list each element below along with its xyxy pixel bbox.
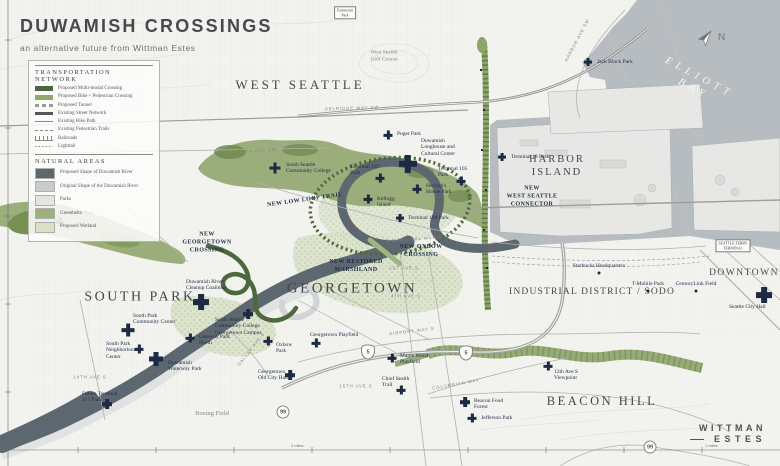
poi-marker-kellogg-island xyxy=(364,195,373,204)
legend-item-proposed-multi-modal-crossing: Proposed Multi-modal Crossing xyxy=(35,86,153,92)
legend-transportation-items: Proposed Multi-modal CrossingProposed Bi… xyxy=(35,86,153,150)
poi-label-12th-ave-s-viewpoint: 12th Ave S Viewpoint xyxy=(554,369,578,382)
poi-marker-gateway-park-north xyxy=(186,334,195,343)
scale-label-1-miles: 1 miles xyxy=(705,444,718,449)
cross-icon xyxy=(498,156,506,159)
poi-label-maple-wood-playfield: Maple Wood Playfield xyxy=(400,353,428,366)
legend-label-proposed-bike-pedestrian-crossing: Proposed Bike + Pedestrian Crossing xyxy=(58,94,132,100)
north-label: N xyxy=(718,32,725,43)
region-label-south-park: SOUTH PARK xyxy=(84,288,195,306)
cross-icon xyxy=(544,364,553,367)
new-infra-label-new-oxbow-crossing: NEW OXBOW CROSSING xyxy=(400,244,443,260)
legend-label-proposed-shape-of-duwamish-river: Proposed Shape of Duwamish River xyxy=(60,170,133,176)
poi-label-duwamish-waterway-park: Duwamish Waterway Park xyxy=(168,360,202,373)
poi-label-terminal-108-park: Terminal 108 Park xyxy=(408,215,449,221)
logo-line-1: WITTMAN xyxy=(692,423,766,433)
poi-marker-south-park-community-center xyxy=(122,324,135,337)
cross-icon xyxy=(584,61,592,64)
legend-swatch-proposed-multi-modal-crossing xyxy=(35,86,53,91)
poi-dot-starbucks-headquarters xyxy=(598,272,601,275)
poi-marker-south-park-neighborhood-center xyxy=(135,345,144,354)
cross-icon xyxy=(364,197,373,200)
poi-label-t-mobile-park: T-Mobile Park xyxy=(632,281,664,287)
poi-label-beacon-food-forest: Beacon Food Forest xyxy=(474,398,503,411)
poi-label-georgetown-playfield: Georgetown Playfield xyxy=(310,332,358,338)
cross-icon xyxy=(264,339,273,342)
road-label-4th-ave-s: 4TH AVE S xyxy=(391,293,421,298)
poi-marker-terminal-105-park xyxy=(457,177,466,186)
poi-label-puget-park: Puget Park xyxy=(397,131,421,137)
poi-marker-maple-wood-playfield xyxy=(388,354,397,363)
cross-icon xyxy=(270,166,281,170)
poi-marker-terminal-108-park xyxy=(396,214,404,222)
legend-swatch-proposed-tunnel xyxy=(35,104,53,107)
poi-marker-beacon-food-forest xyxy=(460,397,470,407)
scale-label-2-miles: 2 miles xyxy=(291,444,304,449)
poi-marker-jefferson-park xyxy=(468,414,477,423)
duwamish-crossings-map: DUWAMISH CROSSINGS an alternative future… xyxy=(0,0,780,466)
cross-icon xyxy=(399,161,417,167)
compass: N xyxy=(698,28,725,46)
poi-label-centurylink-field: CenturyLink Field xyxy=(676,281,717,287)
legend-label-lightrail: Lightrail xyxy=(58,144,76,150)
road-label-14th-ave-s: 14TH AVE S xyxy=(73,374,106,379)
poi-label-south-seattle-community-college: South Seattle Community College xyxy=(286,162,331,175)
poi-label-starbucks-headquarters: Starbucks Headquarters xyxy=(573,263,625,269)
poi-marker-south-seattle-community-college-georgetown-campus xyxy=(243,309,253,319)
poi-label-jack-block-park: Jack Block Park xyxy=(597,59,633,65)
poi-marker-terminal-107-park xyxy=(376,174,385,183)
legend-swatch-proposed-shape-of-duwamish-river xyxy=(35,168,55,179)
boxed-label-seattle-ferry-terminal: SEATTLE FERRY TERMINAL xyxy=(715,239,750,252)
new-infra-label-new-georgetown-crossing: NEW GEORGETOWN CROSSING xyxy=(182,231,231,254)
north-pier-slab xyxy=(548,84,703,134)
cross-icon xyxy=(186,336,195,339)
cross-icon xyxy=(122,328,135,333)
legend-item-proposed-wetland: Proposed Wetland xyxy=(35,222,153,233)
new-infra-label-new-restored-marshland: NEW RESTORED MARSHLAND xyxy=(329,259,382,275)
cross-icon xyxy=(468,416,477,419)
legend-swatch-proposed-wetland xyxy=(35,222,55,233)
poi-marker-future-terminal-117-park xyxy=(102,399,112,409)
area-label-boeing-field: Boeing Field xyxy=(195,410,229,418)
legend-swatch-railroads xyxy=(35,136,53,141)
legend-item-existing-pedestrian-trails: Existing Pedestrian Trails xyxy=(35,127,153,133)
legend-item-lightrail: Lightrail xyxy=(35,144,153,150)
poi-label-south-park-neighborhood-center: South Park Neighborhood Center xyxy=(106,341,138,360)
legend-item-railroads: Railroads xyxy=(35,136,153,142)
legend-swatch-existing-bike-path xyxy=(35,121,53,122)
legend-item-proposed-shape-of-duwamish-river: Proposed Shape of Duwamish River xyxy=(35,168,153,179)
title-block: DUWAMISH CROSSINGS an alternative future… xyxy=(20,16,273,53)
legend-item-existing-street-network: Existing Street Network xyxy=(35,111,153,117)
legend-label-original-shape-of-the-duwamish-river: Original Shape of the Duwamish River xyxy=(60,184,138,190)
legend-label-existing-bike-path: Existing Bike Path xyxy=(58,119,96,125)
legend-item-existing-bike-path: Existing Bike Path xyxy=(35,119,153,125)
cross-icon xyxy=(193,299,209,305)
poi-marker-oxbow-park xyxy=(264,337,273,346)
wittman-estes-logo: WITTMAN ESTES xyxy=(692,423,766,444)
area-label-west-seattle-golf-course: West Seattle Golf Course xyxy=(370,49,397,62)
cross-icon xyxy=(397,388,406,391)
cross-icon xyxy=(756,292,772,298)
legend-label-proposed-tunnel: Proposed Tunnel xyxy=(58,103,92,109)
boxed-label-fairmount-park: Fairmount Park xyxy=(334,6,356,19)
cross-icon xyxy=(312,341,321,344)
legend-heading-natural: NATURAL AREAS xyxy=(35,154,153,165)
poi-label-gateway-park-north: Gateway Park North xyxy=(199,334,230,347)
poi-dot-centurylink-field xyxy=(695,290,698,293)
poi-marker-duwamish-waterway-park xyxy=(149,352,163,366)
cross-icon xyxy=(102,402,112,406)
poi-label-seattle-city-hall: Seattle City Hall xyxy=(729,304,766,310)
poi-marker-herring-s-house-park xyxy=(413,185,422,194)
legend-label-greenbelts: Greenbelts xyxy=(60,211,82,217)
poi-marker-terminal-18-park xyxy=(498,153,506,161)
cross-icon xyxy=(384,133,393,136)
cross-icon xyxy=(376,176,385,179)
road-label-15th-ave-s: 15TH AVE S xyxy=(339,383,372,388)
poi-marker-duwamish-longhouse-and-cultural-center xyxy=(399,155,417,173)
poi-label-herring-s-house-park: Herring's House Park xyxy=(426,183,452,196)
cross-icon xyxy=(388,356,397,359)
highway-shield-state-99: 99 xyxy=(644,441,657,454)
legend-label-railroads: Railroads xyxy=(58,136,77,142)
legend-item-proposed-bike-pedestrian-crossing: Proposed Bike + Pedestrian Crossing xyxy=(35,94,153,100)
poi-marker-seattle-city-hall xyxy=(756,287,772,303)
legend-swatch-parks xyxy=(35,195,55,206)
poi-label-oxbow-park: Oxbow Park xyxy=(276,342,292,355)
legend-item-greenbelts: Greenbelts xyxy=(35,208,153,219)
legend-swatch-lightrail xyxy=(35,146,53,147)
cross-icon xyxy=(135,347,144,350)
legend-label-existing-pedestrian-trails: Existing Pedestrian Trails xyxy=(58,127,109,133)
region-label-downtown: DOWNTOWN xyxy=(709,268,779,280)
legend-label-parks: Parks xyxy=(60,197,71,203)
legend-item-original-shape-of-the-duwamish-river: Original Shape of the Duwamish River xyxy=(35,181,153,192)
legend-label-proposed-multi-modal-crossing: Proposed Multi-modal Crossing xyxy=(58,86,122,92)
poi-label-future-terminal-117-park: Future Terminal 117 Park xyxy=(82,391,117,404)
cross-icon xyxy=(396,217,404,220)
poi-dot-t-mobile-park xyxy=(647,290,650,293)
page-subtitle: an alternative future from Wittman Estes xyxy=(20,43,273,53)
poi-label-south-park-community-center: South Park Community Center xyxy=(133,313,175,326)
legend-panel: TRANSPORTATION NETWORK Proposed Multi-mo… xyxy=(28,60,160,242)
highway-shield-state-99: 99 xyxy=(277,406,290,419)
poi-marker-south-seattle-community-college xyxy=(270,163,281,174)
cross-icon xyxy=(285,373,295,377)
poi-marker-georgetown-playfield xyxy=(312,339,321,348)
legend-label-existing-street-network: Existing Street Network xyxy=(58,111,106,117)
north-arrow-icon xyxy=(698,28,714,46)
region-label-west-seattle: WEST SEATTLE xyxy=(235,77,364,93)
region-label-beacon-hill: BEACON HILL xyxy=(547,394,657,410)
poi-marker-jack-block-park xyxy=(584,58,592,66)
legend-item-parks: Parks xyxy=(35,195,153,206)
poi-marker-puget-park xyxy=(384,131,393,140)
legend-swatch-existing-street-network xyxy=(35,112,53,115)
poi-label-jefferson-park: Jefferson Park xyxy=(481,415,513,421)
poi-marker-chief-sealth-trail xyxy=(397,386,406,395)
legend-swatch-existing-pedestrian-trails xyxy=(35,130,53,131)
east-port-slab xyxy=(692,138,780,232)
page-title: DUWAMISH CROSSINGS xyxy=(20,16,273,37)
poi-label-terminal-18-park: Terminal 18 Park xyxy=(511,154,549,160)
legend-swatch-proposed-bike-pedestrian-crossing xyxy=(35,95,53,100)
legend-swatch-original-shape-of-the-duwamish-river xyxy=(35,181,55,192)
poi-marker-georgetown-old-city-hall xyxy=(285,370,295,380)
cross-icon xyxy=(243,312,253,316)
legend-natural-items: Proposed Shape of Duwamish RiverOriginal… xyxy=(35,168,153,233)
poi-label-duwamish-river-cleanup-coalition: Duwamish River Cleanup Coalition xyxy=(186,279,226,292)
cross-icon xyxy=(457,179,466,182)
legend-label-proposed-wetland: Proposed Wetland xyxy=(60,224,96,230)
cross-icon xyxy=(413,187,422,190)
region-label-industrial-district-sodo: INDUSTRIAL DISTRICT / SODO xyxy=(509,287,675,299)
road-label-1st-ave-s: 1ST AVE S xyxy=(389,265,419,270)
logo-line-2: ESTES xyxy=(692,434,766,444)
poi-label-georgetown-old-city-hall: Georgetown Old City Hall xyxy=(258,369,288,382)
legend-heading-transportation: TRANSPORTATION NETWORK xyxy=(35,65,153,83)
poi-marker-12th-ave-s-viewpoint xyxy=(544,362,553,371)
new-infra-label-new-west-seattle-connector: NEW WEST SEATTLE CONNECTOR xyxy=(507,185,558,208)
cross-icon xyxy=(460,400,470,404)
legend-swatch-greenbelts xyxy=(35,208,55,219)
legend-item-proposed-tunnel: Proposed Tunnel xyxy=(35,103,153,109)
poi-label-kellogg-island: Kellogg Island xyxy=(377,196,395,209)
poi-label-duwamish-longhouse-and-cultural-center: Duwamish Longhouse and Cultural Center xyxy=(421,138,455,157)
poi-marker-duwamish-river-cleanup-coalition xyxy=(193,294,209,310)
cross-icon xyxy=(149,356,163,361)
